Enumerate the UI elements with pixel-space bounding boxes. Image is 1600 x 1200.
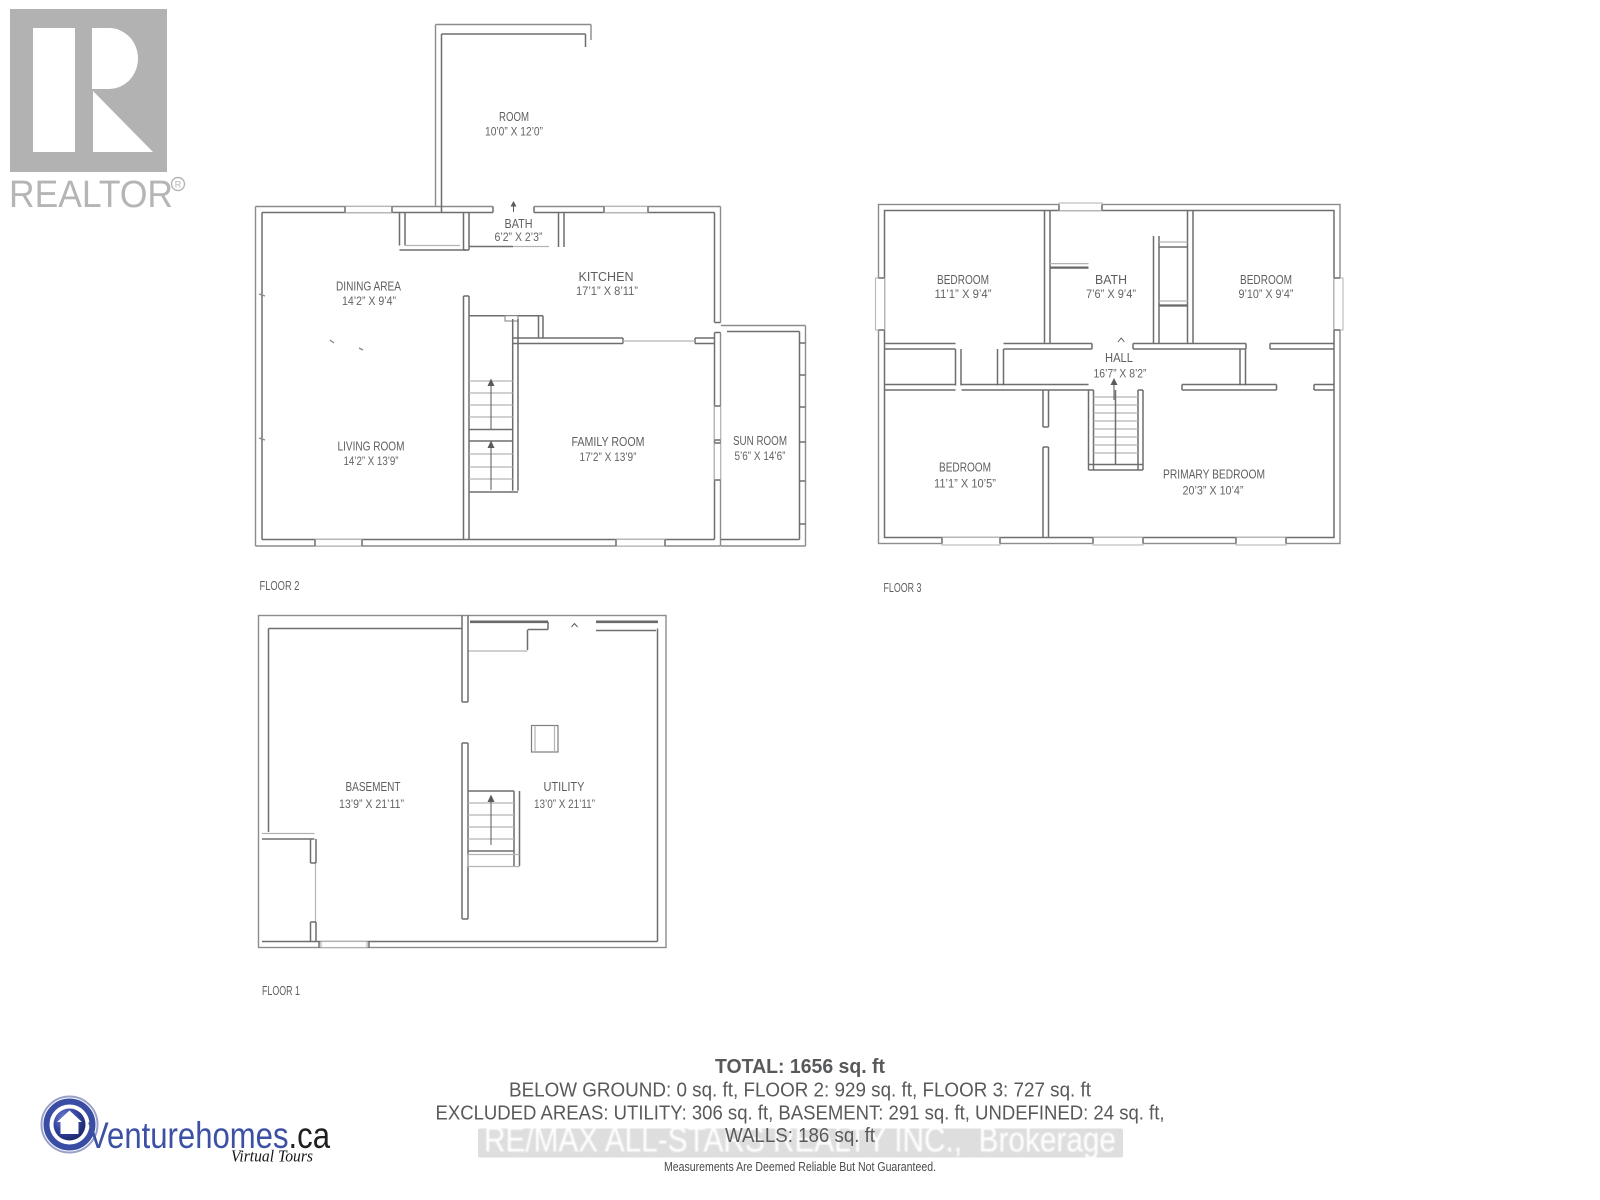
- svg-text:7’6” X 9’4”: 7’6” X 9’4”: [1086, 287, 1136, 301]
- svg-text:EXCLUDED AREAS: UTILITY: 306 s: EXCLUDED AREAS: UTILITY: 306 sq. ft, BAS…: [436, 1102, 1165, 1125]
- svg-text:20’3” X 10’4”: 20’3” X 10’4”: [1183, 484, 1244, 498]
- svg-text:FLOOR 2: FLOOR 2: [260, 579, 300, 593]
- svg-text:17’2” X 13’9”: 17’2” X 13’9”: [580, 450, 637, 464]
- svg-text:LIVING ROOM: LIVING ROOM: [338, 439, 405, 454]
- svg-text:5’6” X 14’6”: 5’6” X 14’6”: [735, 449, 786, 463]
- svg-text:BELOW GROUND: 0 sq. ft, FLOOR: BELOW GROUND: 0 sq. ft, FLOOR 2: 929 sq.…: [509, 1079, 1091, 1102]
- svg-text:11’1” X 9’4”: 11’1” X 9’4”: [935, 287, 992, 301]
- svg-text:FLOOR 1: FLOOR 1: [262, 984, 300, 998]
- svg-text:BASEMENT: BASEMENT: [346, 779, 401, 794]
- svg-text:Measurements Are Deemed Reliab: Measurements Are Deemed Reliable But Not…: [664, 1159, 936, 1174]
- svg-text:BEDROOM: BEDROOM: [939, 460, 991, 475]
- svg-text:WALLS: 186 sq. ft: WALLS: 186 sq. ft: [725, 1124, 875, 1147]
- svg-text:BEDROOM: BEDROOM: [937, 272, 989, 287]
- svg-text:KITCHEN: KITCHEN: [579, 269, 634, 284]
- svg-text:13’0” X 21’11”: 13’0” X 21’11”: [534, 797, 595, 811]
- svg-text:17’1” X 8’11”: 17’1” X 8’11”: [576, 284, 638, 298]
- svg-text:BEDROOM: BEDROOM: [1240, 272, 1292, 287]
- svg-text:TOTAL: 1656 sq. ft: TOTAL: 1656 sq. ft: [715, 1055, 885, 1078]
- svg-text:PRIMARY BEDROOM: PRIMARY BEDROOM: [1163, 467, 1265, 482]
- svg-text:16’7” X 8’2”: 16’7” X 8’2”: [1094, 367, 1147, 381]
- svg-text:BATH: BATH: [1095, 272, 1127, 287]
- svg-text:HALL: HALL: [1105, 350, 1133, 365]
- svg-text:14’2” X 13’9”: 14’2” X 13’9”: [344, 454, 399, 468]
- svg-text:11’1” X 10’5”: 11’1” X 10’5”: [934, 477, 996, 491]
- svg-text:6’2” X 2’3”: 6’2” X 2’3”: [495, 230, 543, 244]
- svg-text:9’10” X 9’4”: 9’10” X 9’4”: [1239, 287, 1294, 301]
- svg-text:SUN ROOM: SUN ROOM: [733, 433, 787, 448]
- svg-text:BATH: BATH: [505, 216, 533, 231]
- svg-text:ROOM: ROOM: [499, 109, 529, 124]
- svg-text:FAMILY ROOM: FAMILY ROOM: [572, 434, 645, 449]
- svg-text:R: R: [175, 180, 182, 190]
- svg-text:FLOOR 3: FLOOR 3: [884, 581, 922, 595]
- svg-text:DINING AREA: DINING AREA: [336, 279, 401, 294]
- svg-text:13’9” X 21’11”: 13’9” X 21’11”: [339, 797, 404, 811]
- svg-text:Virtual Tours: Virtual Tours: [231, 1147, 313, 1166]
- svg-text:UTILITY: UTILITY: [544, 779, 585, 794]
- svg-text:14’2” X 9’4”: 14’2” X 9’4”: [342, 294, 396, 308]
- svg-text:REALTOR: REALTOR: [9, 174, 173, 216]
- svg-text:10’0” X 12’0”: 10’0” X 12’0”: [485, 125, 543, 139]
